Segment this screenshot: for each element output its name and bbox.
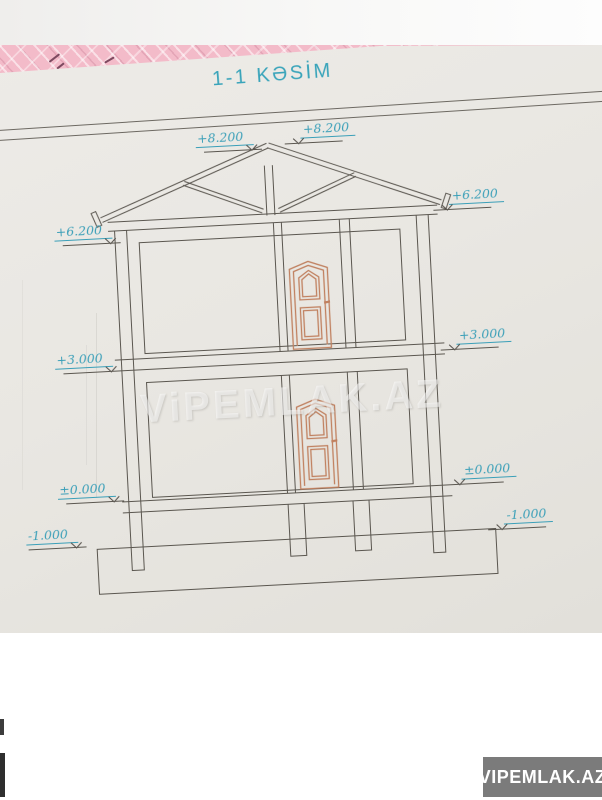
- truss-king-post: [264, 165, 276, 215]
- pink-sheet-print-mark: [104, 56, 115, 63]
- elevation-marker-foundation-left: -1.000: [27, 523, 86, 550]
- elevation-marker-eaves-right: +6.200: [432, 184, 491, 211]
- vipemlak-logo-text: VIPEMLAK.AZ: [479, 767, 602, 788]
- elevation-marker-floor2-left: +3.000: [62, 347, 121, 374]
- elevation-marker-ridge-left: +8.200: [203, 126, 262, 153]
- elevation-marker-ground-left: ±0.000: [65, 477, 124, 504]
- vipemlak-logo-badge: VIPEMLAK.AZ: [483, 757, 602, 797]
- pink-sheet-print-mark: [56, 62, 64, 69]
- elevation-marker-floor2-right: +3.000: [440, 324, 499, 351]
- elevation-marker-ground-right: ±0.000: [445, 459, 504, 486]
- photo-edge-artifact: [0, 753, 5, 797]
- paper-bleed-mark: [22, 280, 23, 490]
- photo-of-architectural-drawing: { "page": { "title": "1-1 KƏSİM", "water…: [0, 0, 602, 800]
- truss-strut-left: [183, 181, 264, 213]
- foundation: [97, 528, 499, 595]
- photo-edge-artifact: [0, 719, 4, 735]
- pink-sheet-print-mark: [49, 53, 61, 63]
- elevation-marker-eaves-left: +6.200: [62, 219, 121, 246]
- elevation-marker-foundation-right: -1.000: [487, 503, 546, 530]
- image-top-margin: [0, 0, 602, 46]
- second-floor-room-outline: [139, 229, 407, 355]
- truss-strut-right: [278, 172, 356, 212]
- door-upper: [288, 256, 333, 350]
- elevation-marker-ridge-right: +8.200: [284, 117, 343, 144]
